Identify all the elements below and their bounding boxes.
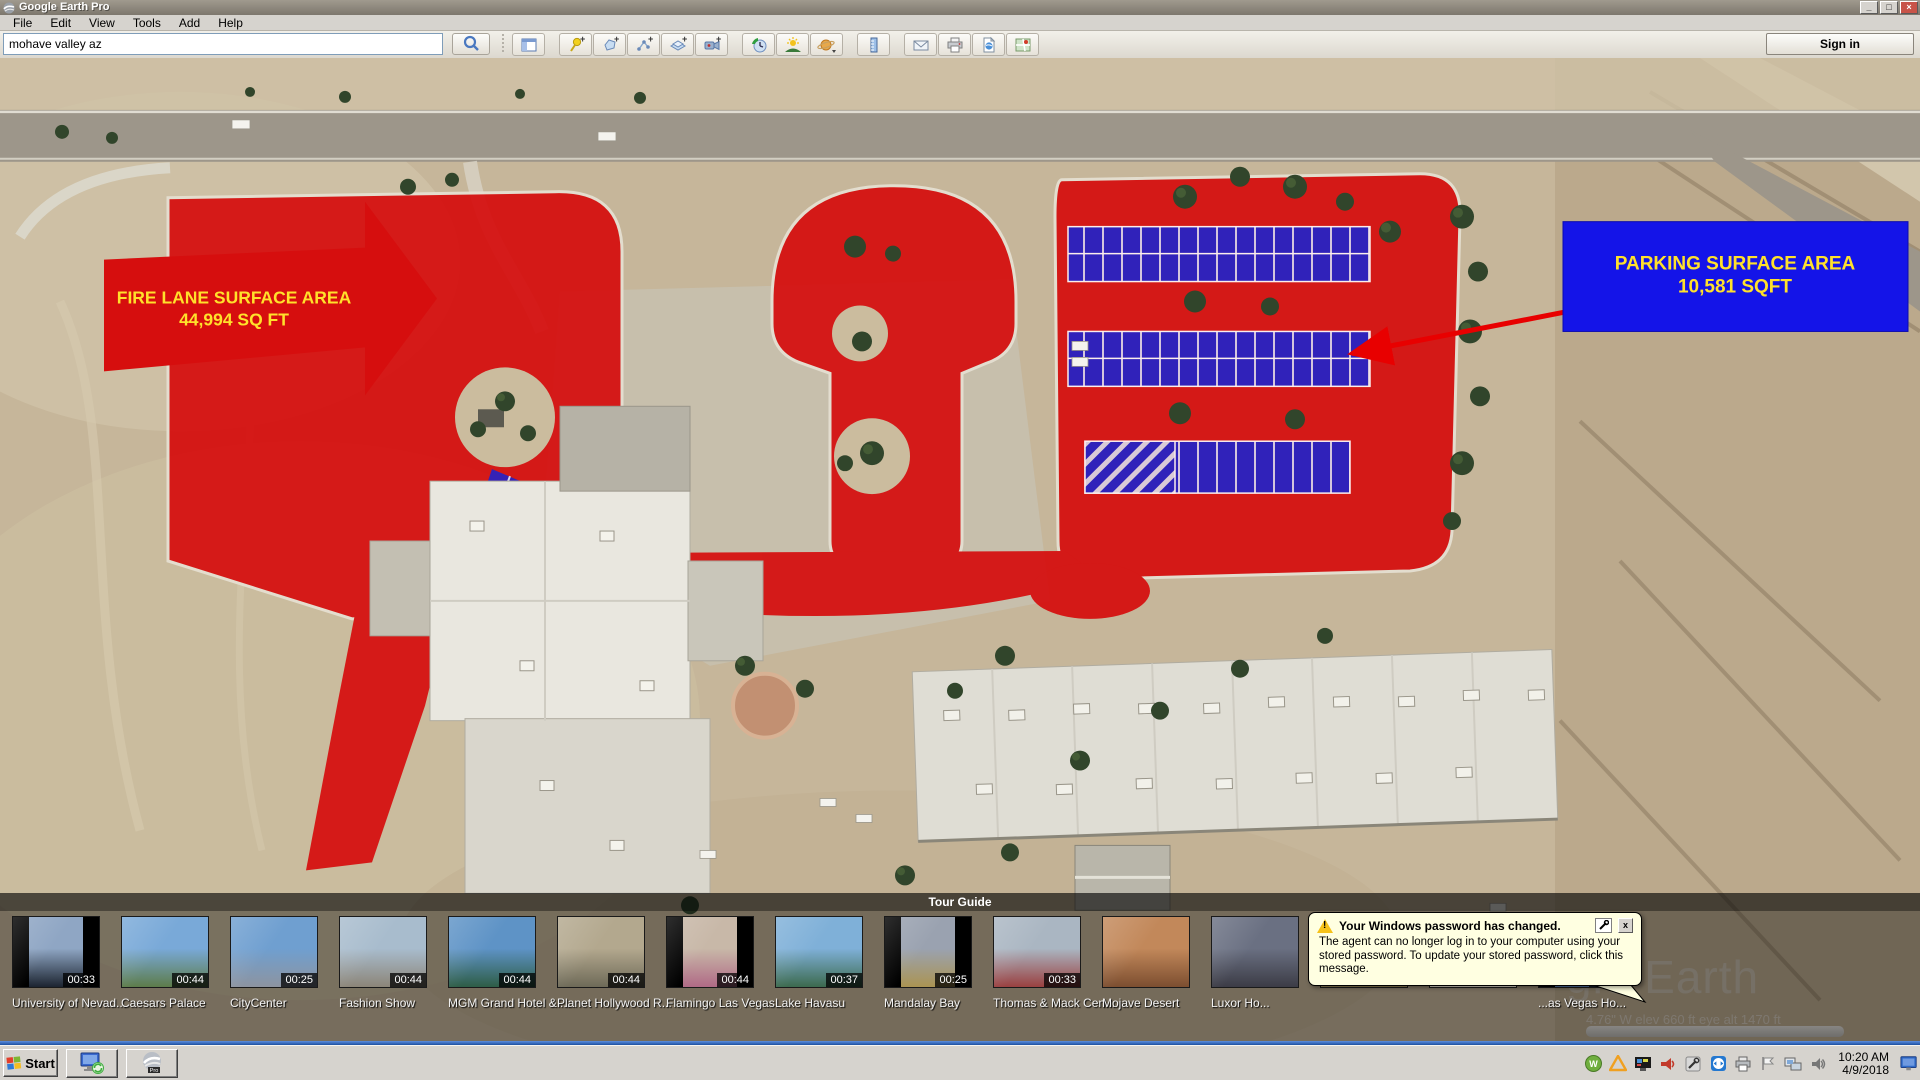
menu-view[interactable]: View (80, 15, 124, 31)
sunlight-button[interactable] (776, 33, 809, 56)
tour-time-badge: 00:44 (717, 973, 753, 987)
teamviewer-tray-icon[interactable] (1709, 1055, 1727, 1073)
planet-icon (817, 36, 837, 54)
window-title: Google Earth Pro (19, 0, 109, 15)
sign-in-button[interactable]: Sign in (1766, 33, 1914, 55)
toolbar: + + + + (0, 31, 1920, 58)
tour-item[interactable]: 00:44 Fashion Show (339, 916, 427, 1010)
tour-time-badge: 00:33 (63, 973, 99, 987)
path-icon: + (635, 36, 653, 54)
satellite-map-view[interactable]: FIRE LANE SURFACE AREA 44,994 SQ FT PARK… (0, 58, 1920, 1045)
placemark-icon: + (567, 36, 585, 54)
clock-history-icon (750, 36, 768, 54)
tour-time-badge: 00:25 (935, 973, 971, 987)
google-earth-pro-icon: Pro (139, 1051, 165, 1075)
parking-label-line2: 10,581 SQFT (1678, 277, 1792, 298)
tour-item[interactable]: 00:44 Planet Hollywood R... (557, 916, 645, 1010)
planets-button[interactable] (810, 33, 843, 56)
tour-time-badge: 00:44 (390, 973, 426, 987)
balloon-tool-button[interactable] (1595, 918, 1612, 933)
tray-clock[interactable]: 10:20 AM 4/9/2018 (1838, 1051, 1889, 1077)
tour-thumbnail[interactable]: 00:44 (121, 916, 209, 988)
camera-icon: + (703, 36, 721, 54)
email-icon (912, 36, 930, 54)
ruler-icon (865, 36, 883, 54)
menu-edit[interactable]: Edit (41, 15, 80, 31)
windows-logo-icon (6, 1056, 22, 1071)
system-tray: W (1584, 1046, 1918, 1080)
save-image-icon (980, 36, 998, 54)
start-label: Start (25, 1056, 55, 1071)
balloon-close-button[interactable]: x (1618, 918, 1633, 933)
tour-item[interactable]: 00:37 Lake Havasu (775, 916, 863, 1010)
tour-time-badge: 00:37 (826, 973, 862, 987)
tour-item[interactable]: Luxor Ho... (1211, 916, 1299, 1010)
volume-tray-icon[interactable] (1809, 1055, 1827, 1073)
menu-tools[interactable]: Tools (124, 15, 170, 31)
taskbar-app-remote-desktop[interactable] (66, 1049, 118, 1078)
tour-thumbnail[interactable]: 00:37 (775, 916, 863, 988)
tour-time-badge: 00:44 (499, 973, 535, 987)
svg-text:W: W (1589, 1059, 1598, 1069)
print-button[interactable] (938, 33, 971, 56)
tour-guide-header[interactable]: Tour Guide (0, 893, 1920, 911)
tour-item-label: University of Nevad... (12, 996, 100, 1010)
add-polygon-button[interactable]: + (593, 33, 626, 56)
wrench-icon (1598, 920, 1609, 931)
settings-tray-icon[interactable] (1684, 1055, 1702, 1073)
svg-text:Pro: Pro (150, 1068, 159, 1074)
svg-text:+: + (580, 36, 585, 44)
tour-item[interactable]: 00:33 University of Nevad... (12, 916, 100, 1010)
tour-thumbnail[interactable]: 00:33 (12, 916, 100, 988)
tour-item-label: Luxor Ho... (1211, 996, 1299, 1010)
view-in-maps-button[interactable] (1006, 33, 1039, 56)
sidebar-toggle-button[interactable] (512, 33, 545, 56)
sun-icon (784, 36, 802, 54)
fire-lane-label-line1: FIRE LANE SURFACE AREA (117, 288, 352, 308)
add-image-overlay-button[interactable]: + (661, 33, 694, 56)
minimize-button[interactable]: _ (1860, 1, 1878, 14)
show-desktop-icon[interactable] (1900, 1055, 1918, 1073)
tour-item-label: Flamingo Las Vegas (666, 996, 754, 1010)
tour-thumbnail[interactable]: 00:44 (339, 916, 427, 988)
tour-thumb-photo (1103, 917, 1189, 987)
google-earth-app-icon (3, 2, 15, 14)
password-changed-balloon[interactable]: Your Windows password has changed. x The… (1308, 912, 1642, 986)
search-button[interactable] (452, 33, 490, 55)
start-button[interactable]: Start (3, 1049, 58, 1077)
sidebar-icon (520, 36, 538, 54)
taskbar-app-google-earth-pro[interactable]: Pro (126, 1049, 178, 1078)
tour-time-badge: 00:33 (1044, 973, 1080, 987)
tour-item-label: Fashion Show (339, 996, 427, 1010)
tour-time-badge: 00:44 (172, 973, 208, 987)
tour-item-label: Lake Havasu (775, 996, 863, 1010)
add-path-button[interactable]: + (627, 33, 660, 56)
toolbar-separator (502, 34, 504, 54)
display-tray-icon[interactable] (1634, 1055, 1652, 1073)
maximize-button[interactable]: □ (1880, 1, 1898, 14)
menu-bar: File Edit View Tools Add Help (0, 15, 1920, 31)
desktop: Google Earth Pro _ □ × File Edit View To… (0, 0, 1920, 1080)
parking-overlay (1068, 227, 1370, 493)
tour-item[interactable]: Mojave Desert (1102, 916, 1190, 1010)
tour-thumbnail[interactable] (1102, 916, 1190, 988)
parking-label-line1: PARKING SURFACE AREA (1615, 254, 1856, 275)
add-placemark-button[interactable]: + (559, 33, 592, 56)
taskbar: Start Pro (0, 1045, 1920, 1080)
agent-warning-tray-icon[interactable] (1609, 1055, 1627, 1073)
menu-help[interactable]: Help (209, 15, 252, 31)
tour-item[interactable]: 00:44 Caesars Palace (121, 916, 209, 1010)
tour-item[interactable]: 00:33 Thomas & Mack Cen... (993, 916, 1081, 1010)
tour-thumb-photo (1212, 917, 1298, 987)
menu-add[interactable]: Add (170, 15, 209, 31)
network-tray-icon[interactable] (1784, 1055, 1802, 1073)
fire-lane-label-line2: 44,994 SQ FT (179, 309, 289, 329)
tour-item-label: Planet Hollywood R... (557, 996, 645, 1010)
warning-icon (1317, 919, 1333, 933)
record-tour-button[interactable]: + (695, 33, 728, 56)
balloon-title: Your Windows password has changed. (1339, 919, 1589, 933)
window-titlebar[interactable]: Google Earth Pro _ □ × (0, 0, 1920, 15)
print-icon (946, 36, 964, 54)
maps-icon (1014, 36, 1032, 54)
flag-tray-icon[interactable] (1759, 1055, 1777, 1073)
tour-item-label: Thomas & Mack Cen... (993, 996, 1081, 1010)
close-button[interactable]: × (1900, 1, 1918, 14)
tour-guide-title: Tour Guide (928, 895, 991, 909)
svg-text:+: + (614, 36, 619, 44)
webroot-tray-icon[interactable]: W (1584, 1055, 1602, 1073)
tour-thumbnail[interactable] (1211, 916, 1299, 988)
tour-thumbnail[interactable]: 00:25 (230, 916, 318, 988)
email-button[interactable] (904, 33, 937, 56)
tray-date: 4/9/2018 (1838, 1064, 1889, 1077)
tour-thumbnail[interactable]: 00:44 (666, 916, 754, 988)
menu-file[interactable]: File (4, 15, 41, 31)
search-icon (462, 34, 480, 52)
tour-thumbnail[interactable]: 00:44 (448, 916, 536, 988)
tour-item-label: CityCenter (230, 996, 318, 1010)
balloon-tail (1585, 984, 1655, 1006)
svg-text:+: + (648, 36, 653, 44)
balloon-message[interactable]: The agent can no longer log in to your c… (1317, 936, 1633, 977)
svg-text:+: + (716, 36, 721, 44)
image-overlay-icon: + (669, 36, 687, 54)
tour-item[interactable]: 00:44 Flamingo Las Vegas (666, 916, 754, 1010)
remote-desktop-icon (79, 1051, 105, 1075)
tour-thumbnail[interactable]: 00:33 (993, 916, 1081, 988)
tour-time-badge: 00:44 (608, 973, 644, 987)
save-image-button[interactable] (972, 33, 1005, 56)
polygon-icon: + (601, 36, 619, 54)
tour-item[interactable]: 00:25 CityCenter (230, 916, 318, 1010)
tour-item-label: Caesars Palace (121, 996, 209, 1010)
printer-tray-icon[interactable] (1734, 1055, 1752, 1073)
tour-item-label: Mojave Desert (1102, 996, 1190, 1010)
ruler-button[interactable] (857, 33, 890, 56)
tray-time: 10:20 AM (1838, 1051, 1889, 1064)
tour-item[interactable]: 00:44 MGM Grand Hotel & ... (448, 916, 536, 1010)
historical-imagery-button[interactable] (742, 33, 775, 56)
tour-item-label: Mandalay Bay (884, 996, 972, 1010)
tour-time-badge: 00:25 (281, 973, 317, 987)
sound-alert-tray-icon[interactable] (1659, 1055, 1677, 1073)
tour-item-label: MGM Grand Hotel & ... (448, 996, 536, 1010)
tour-thumbnail[interactable]: 00:25 (884, 916, 972, 988)
tour-thumbnail[interactable]: 00:44 (557, 916, 645, 988)
search-input[interactable] (3, 33, 443, 55)
tour-item[interactable]: 00:25 Mandalay Bay (884, 916, 972, 1010)
svg-text:+: + (682, 36, 687, 44)
